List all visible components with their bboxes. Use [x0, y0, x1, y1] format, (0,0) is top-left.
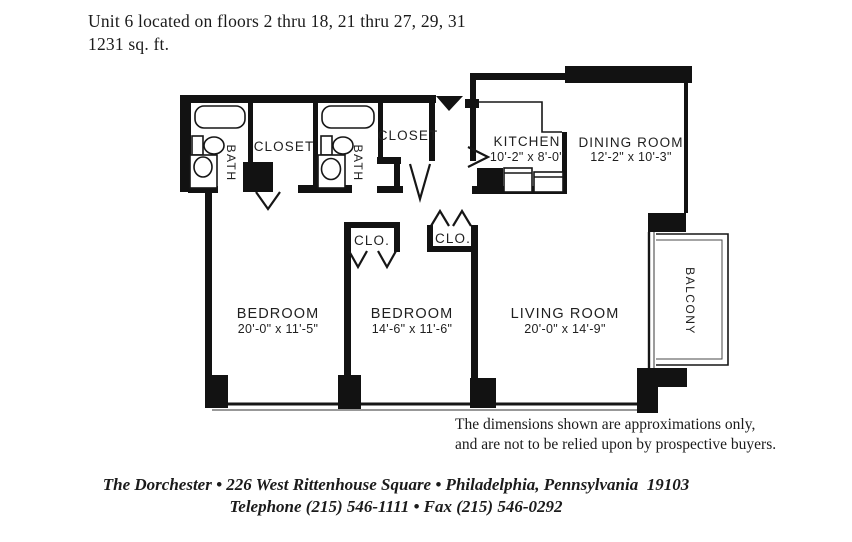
clo-2-label: CLO. — [435, 231, 471, 246]
entry-door-icon — [436, 96, 463, 111]
balcony-label: BALCONY — [683, 267, 697, 335]
disclaimer-line-1: The dimensions shown are approximations … — [455, 415, 776, 435]
bath-1-label: BATH — [224, 144, 238, 181]
living-room-label: LIVING ROOM — [511, 306, 620, 322]
window-wall-balcony — [649, 232, 654, 368]
window-wall-bottom — [212, 404, 646, 410]
toilet-2-bowl — [333, 137, 353, 154]
closet2-door-swing — [410, 164, 430, 199]
sink-1 — [194, 157, 212, 177]
room-kitchen: KITCHEN 10'-2" x 8'-0" — [490, 134, 564, 164]
room-bedroom-2: BEDROOM 14'-6" x 11'-6" — [371, 306, 454, 336]
kitchen-dimensions: 10'-2" x 8'-0" — [490, 150, 564, 164]
building-phone-line: Telephone (215) 546-1111 • Fax (215) 546… — [0, 496, 792, 518]
floor-plan-page: Unit 6 located on floors 2 thru 18, 21 t… — [0, 0, 852, 542]
room-closet-1: CLOSET — [254, 139, 315, 154]
room-dining: DINING ROOM 12'-2" x 10'-3" — [578, 135, 683, 164]
building-address-line: The Dorchester • 226 West Rittenhouse Sq… — [0, 474, 792, 496]
bedroom-1-label: BEDROOM — [237, 306, 320, 322]
disclaimer: The dimensions shown are approximations … — [455, 415, 776, 455]
dining-room-dimensions: 12'-2" x 10'-3" — [590, 150, 671, 164]
clo2-bifold-swing — [431, 211, 471, 226]
room-clo-1: CLO. — [354, 233, 390, 248]
clo1-bifold-swing — [349, 251, 396, 267]
bathtub-1 — [195, 106, 245, 128]
closet-1-label: CLOSET — [254, 139, 315, 154]
living-room-dimensions: 20'-0" x 14'-9" — [524, 322, 605, 336]
room-bedroom-1: BEDROOM 20'-0" x 11'-5" — [237, 306, 320, 336]
floor-plan-drawing: BATH BATH CLOSET CLOSET KITCHEN 10'-2" x… — [0, 0, 852, 542]
kitchen-counter-line — [478, 102, 562, 132]
bath-2-label: BATH — [351, 144, 365, 181]
toilet-2-tank — [321, 136, 332, 155]
room-living: LIVING ROOM 20'-0" x 14'-9" — [511, 306, 620, 336]
kitchen-label: KITCHEN — [494, 134, 561, 149]
room-balcony: BALCONY — [683, 267, 697, 335]
bathtub-2 — [322, 106, 374, 128]
kitchen-appliance — [477, 168, 503, 192]
bedroom-2-label: BEDROOM — [371, 306, 454, 322]
sink-2 — [322, 159, 341, 180]
building-contact-footer: The Dorchester • 226 West Rittenhouse Sq… — [0, 474, 792, 518]
kitchen-counter-2 — [534, 172, 563, 192]
bedroom-2-dimensions: 14'-6" x 11'-6" — [372, 322, 452, 336]
room-bath-1: BATH — [224, 144, 238, 181]
toilet-1-bowl — [204, 137, 224, 154]
kitchen-counter-1 — [504, 168, 532, 192]
disclaimer-line-2: and are not to be relied upon by prospec… — [455, 435, 776, 455]
clo-1-label: CLO. — [354, 233, 390, 248]
closet-2-label: CLOSET — [378, 128, 439, 143]
toilet-1-tank — [192, 136, 203, 155]
room-closet-2: CLOSET — [378, 128, 439, 143]
bedroom-1-dimensions: 20'-0" x 11'-5" — [238, 322, 318, 336]
structural-columns — [205, 368, 687, 413]
dining-room-label: DINING ROOM — [578, 135, 683, 150]
room-clo-2: CLO. — [435, 231, 471, 246]
room-bath-2: BATH — [351, 144, 365, 181]
hall-door-swing — [256, 192, 280, 209]
